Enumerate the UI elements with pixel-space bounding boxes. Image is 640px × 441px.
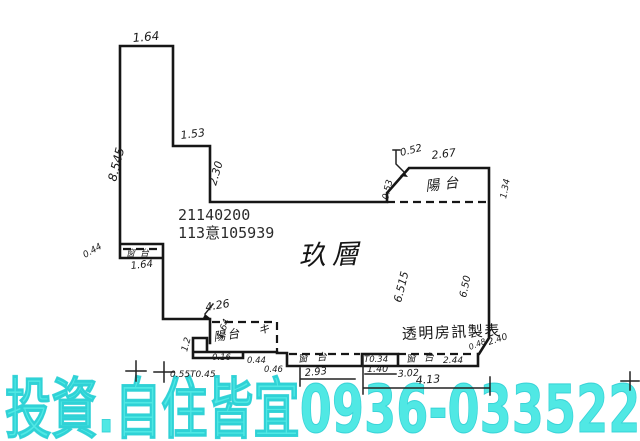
window-sill-left-label: 窗台 (126, 248, 154, 259)
balcony-bottom-label: 陽台 (212, 326, 242, 344)
case-number: 113意105939 (178, 224, 274, 242)
permit-number: 21140200 (178, 206, 250, 224)
dim-pillar-span: 1.40 (367, 364, 388, 375)
dim-balcony-chamfer: 0.52 (399, 143, 423, 159)
dim-balcony-width: 2.67 (431, 146, 457, 162)
dim-step-width: 1.53 (180, 126, 206, 142)
floor-plan-page: 投資.自住皆宜0936-033522 1.64 8.545 1.53 2.30 … (0, 0, 640, 441)
dim-left-height: 8.545 (105, 146, 127, 183)
dim-left-window-width: 1.64 (130, 259, 153, 272)
dim-sill-depth: 0.16 (212, 353, 232, 363)
dim-low-balcony-notch: 1.2 (180, 336, 193, 353)
dim-bottom-total: 4.13 (415, 372, 440, 387)
floor-label: 玖層 (298, 239, 365, 272)
dim-window-right-sill: 2.44 (443, 356, 463, 366)
dim-balcony-left: 0.53 (381, 179, 395, 201)
dim-right-height: 6.50 (458, 275, 473, 299)
floor-plan-drawing: 1.64 8.545 1.53 2.30 0.52 2.67 0.53 1.34… (0, 0, 640, 441)
dim-window-mid-width: 2.93 (304, 366, 327, 379)
dim-low-left: 0.55T0.45 (170, 370, 216, 380)
window-sill-mid-label: 窗台 (297, 350, 336, 365)
hand-mark: キ (257, 322, 270, 337)
dim-left-window-depth: 0.44 (82, 242, 105, 261)
window-sill-right-label: 窗台 (406, 351, 443, 365)
dim-top-width: 1.64 (132, 29, 160, 45)
maker-label: 透明房訊製表 (402, 322, 502, 343)
balcony-top-label: 陽台 (425, 174, 465, 195)
dim-low-mid-b: 0.46 (264, 365, 284, 375)
wall-outline (120, 46, 489, 366)
dim-low-balcony-width: 4.26 (204, 297, 230, 314)
dim-interior-height: 6.515 (391, 270, 411, 304)
dim-balcony-right: 1.34 (499, 178, 513, 200)
